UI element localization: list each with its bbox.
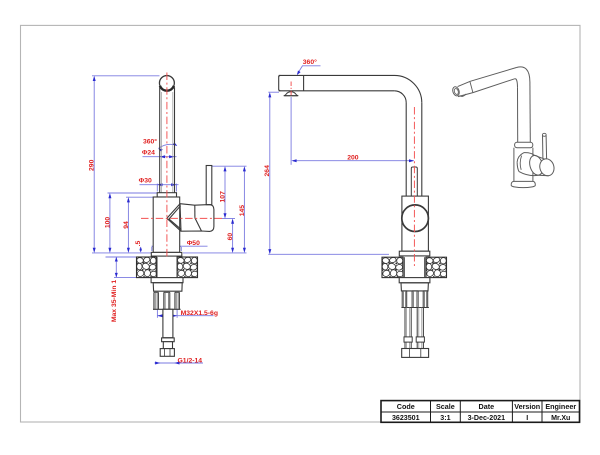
svg-text:Max 35-Min 1: Max 35-Min 1 (111, 280, 118, 323)
svg-text:200: 200 (347, 155, 359, 162)
svg-text:Scale: Scale (436, 402, 455, 411)
svg-text:Date: Date (479, 402, 495, 411)
svg-text:Version: Version (514, 402, 540, 411)
svg-text:107: 107 (219, 191, 226, 203)
svg-text:290: 290 (89, 159, 96, 171)
svg-text:100: 100 (104, 217, 111, 229)
svg-text:145: 145 (239, 205, 246, 217)
svg-text:60: 60 (227, 233, 234, 241)
svg-text:94: 94 (123, 221, 130, 229)
svg-text:360°: 360° (303, 58, 317, 66)
svg-text:3-Dec-2021: 3-Dec-2021 (468, 414, 506, 422)
svg-text:Mr.Xu: Mr.Xu (551, 414, 570, 422)
svg-text:.5: .5 (135, 240, 142, 246)
svg-text:Φ30: Φ30 (139, 178, 152, 185)
svg-text:Φ50: Φ50 (187, 240, 200, 247)
svg-text:360°: 360° (143, 137, 157, 145)
svg-text:Code: Code (397, 402, 415, 411)
svg-text:G1/2-14: G1/2-14 (178, 358, 203, 365)
svg-text:Φ24: Φ24 (142, 150, 155, 157)
svg-text:3:1: 3:1 (440, 414, 450, 422)
svg-text:3623501: 3623501 (392, 414, 420, 422)
svg-text:Engineer: Engineer (545, 402, 576, 411)
svg-text:I: I (526, 414, 528, 422)
svg-text:264: 264 (264, 165, 271, 177)
svg-text:M32X1.5-6g: M32X1.5-6g (181, 310, 218, 317)
